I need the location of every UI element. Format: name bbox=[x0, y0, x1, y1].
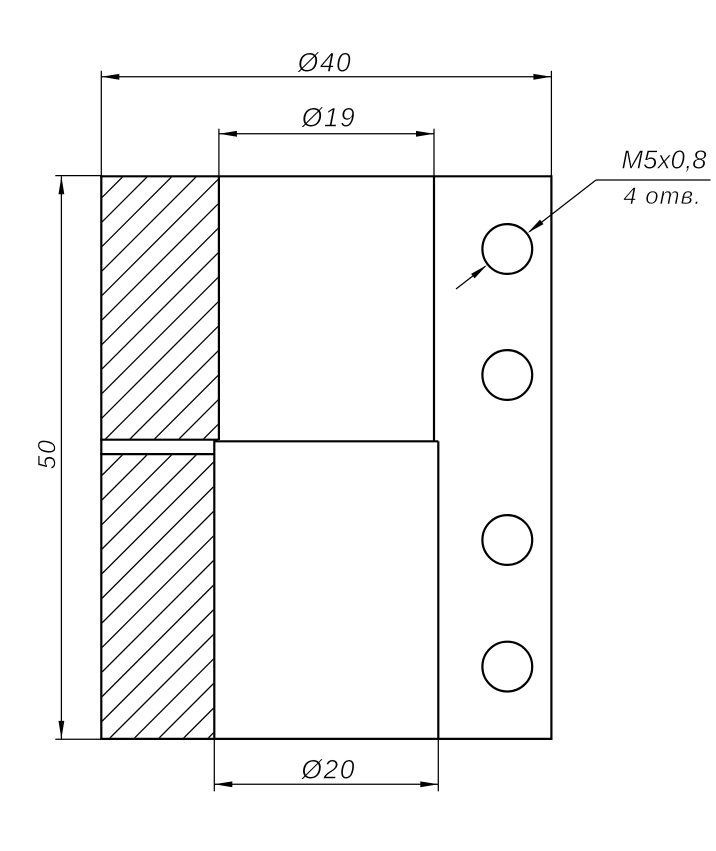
svg-text:Ø20: Ø20 bbox=[300, 755, 356, 785]
svg-text:Ø19: Ø19 bbox=[301, 102, 357, 132]
svg-text:M5x0,8: M5x0,8 bbox=[621, 144, 707, 174]
svg-text:Ø40: Ø40 bbox=[297, 48, 353, 78]
svg-text:4 omв.: 4 omв. bbox=[623, 183, 702, 210]
svg-text:50: 50 bbox=[34, 439, 62, 470]
